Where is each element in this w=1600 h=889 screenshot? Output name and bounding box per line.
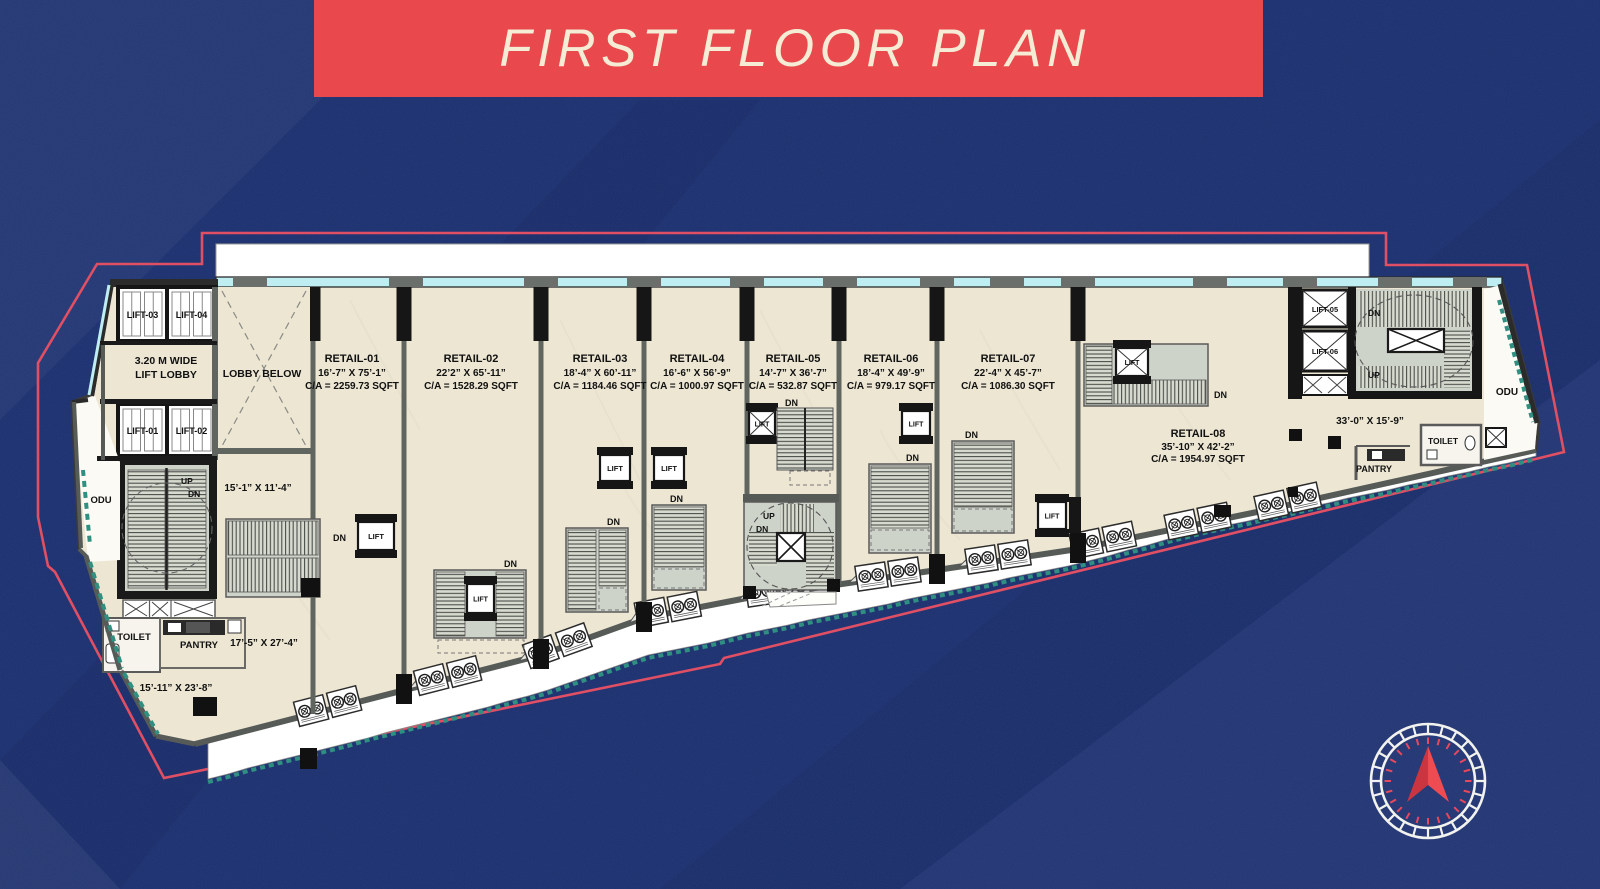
svg-text:C/A = 1954.97 SQFT: C/A = 1954.97 SQFT xyxy=(1151,454,1245,465)
svg-text:22’-4” X 45’-7”: 22’-4” X 45’-7” xyxy=(974,368,1042,379)
svg-text:DN: DN xyxy=(906,453,919,463)
svg-text:LIFT: LIFT xyxy=(909,422,924,429)
svg-text:18’-4” X 49’-9”: 18’-4” X 49’-9” xyxy=(857,368,925,379)
svg-text:16’-7” X 75’-1”: 16’-7” X 75’-1” xyxy=(318,368,386,379)
svg-text:UP: UP xyxy=(763,511,775,521)
svg-text:LIFT-05: LIFT-05 xyxy=(1312,305,1338,314)
svg-text:LIFT: LIFT xyxy=(473,597,488,604)
svg-text:LIFT: LIFT xyxy=(368,532,384,541)
svg-text:LIFT: LIFT xyxy=(755,422,770,429)
svg-text:DN: DN xyxy=(333,533,346,543)
svg-text:35’-10” X 42’-2”: 35’-10” X 42’-2” xyxy=(1161,442,1234,453)
svg-text:RETAIL-05: RETAIL-05 xyxy=(766,353,821,365)
svg-text:RETAIL-01: RETAIL-01 xyxy=(325,353,380,365)
svg-text:UP: UP xyxy=(181,476,193,486)
svg-text:LIFT: LIFT xyxy=(607,464,623,473)
svg-text:ODU: ODU xyxy=(90,495,111,506)
svg-text:RETAIL-06: RETAIL-06 xyxy=(864,353,919,365)
svg-text:33’-0” X 15’-9”: 33’-0” X 15’-9” xyxy=(1336,416,1404,427)
svg-text:RETAIL-04: RETAIL-04 xyxy=(670,353,726,365)
svg-text:C/A = 1184.46 SQFT: C/A = 1184.46 SQFT xyxy=(553,381,646,392)
svg-text:PANTRY: PANTRY xyxy=(180,640,219,651)
svg-text:DN: DN xyxy=(965,430,978,440)
svg-text:UP: UP xyxy=(1368,370,1380,380)
svg-text:C/A = 1528.29 SQFT: C/A = 1528.29 SQFT xyxy=(424,381,518,392)
svg-text:C/A = 1086.30 SQFT: C/A = 1086.30 SQFT xyxy=(961,381,1055,392)
svg-text:15’-1” X 11’-4”: 15’-1” X 11’-4” xyxy=(224,483,291,494)
svg-text:LIFT-01: LIFT-01 xyxy=(127,426,159,436)
svg-text:DN: DN xyxy=(607,517,620,527)
svg-text:LIFT-04: LIFT-04 xyxy=(176,310,208,320)
svg-text:3.20 M WIDE: 3.20 M WIDE xyxy=(135,355,197,367)
svg-text:RETAIL-08: RETAIL-08 xyxy=(1171,428,1226,440)
svg-text:LIFT-02: LIFT-02 xyxy=(176,426,208,436)
svg-text:DN: DN xyxy=(670,494,683,504)
svg-text:DN: DN xyxy=(1214,390,1227,400)
svg-text:DN: DN xyxy=(1368,308,1380,318)
svg-text:TOILET: TOILET xyxy=(117,632,151,643)
svg-text:RETAIL-07: RETAIL-07 xyxy=(981,353,1036,365)
svg-text:C/A = 979.17 SQFT: C/A = 979.17 SQFT xyxy=(847,381,935,392)
svg-text:C/A = 532.87 SQFT: C/A = 532.87 SQFT xyxy=(749,381,837,392)
svg-text:18’-4” X 60’-11”: 18’-4” X 60’-11” xyxy=(564,368,637,379)
svg-text:LOBBY BELOW: LOBBY BELOW xyxy=(223,368,302,380)
svg-text:17’-5” X 27’-4”: 17’-5” X 27’-4” xyxy=(230,638,298,649)
svg-text:C/A = 2259.73 SQFT: C/A = 2259.73 SQFT xyxy=(305,381,399,392)
svg-text:DN: DN xyxy=(504,559,517,569)
svg-text:DN: DN xyxy=(188,489,200,499)
svg-text:TOILET: TOILET xyxy=(1428,436,1459,446)
svg-text:LIFT: LIFT xyxy=(661,464,677,473)
svg-text:LIFT-06: LIFT-06 xyxy=(1312,347,1338,356)
svg-text:LIFT-03: LIFT-03 xyxy=(127,310,159,320)
svg-text:DN: DN xyxy=(785,398,798,408)
svg-text:LIFT LOBBY: LIFT LOBBY xyxy=(135,369,197,381)
svg-text:15’-11” X 23’-8”: 15’-11” X 23’-8” xyxy=(140,683,213,694)
svg-text:RETAIL-02: RETAIL-02 xyxy=(444,353,499,365)
svg-text:DN: DN xyxy=(756,524,768,534)
svg-text:LIFT: LIFT xyxy=(1125,360,1140,367)
svg-text:C/A = 1000.97 SQFT: C/A = 1000.97 SQFT xyxy=(650,381,744,392)
svg-text:FIRST FLOOR PLAN: FIRST FLOOR PLAN xyxy=(499,19,1091,78)
svg-text:PANTRY: PANTRY xyxy=(1356,464,1392,474)
svg-text:RETAIL-03: RETAIL-03 xyxy=(573,353,628,365)
svg-text:22’2” X 65’-11”: 22’2” X 65’-11” xyxy=(436,368,506,379)
svg-text:16’-6” X 56’-9”: 16’-6” X 56’-9” xyxy=(663,368,731,379)
svg-text:ODU: ODU xyxy=(1496,387,1518,398)
svg-text:LIFT: LIFT xyxy=(1045,514,1060,521)
svg-text:14’-7” X 36’-7”: 14’-7” X 36’-7” xyxy=(759,368,827,379)
